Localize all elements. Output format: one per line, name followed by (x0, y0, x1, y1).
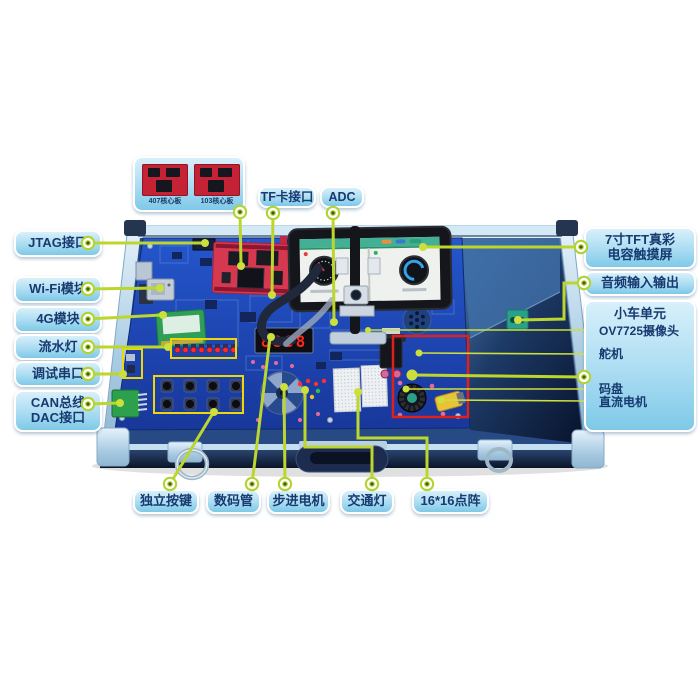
label-dot-matrix: 16*16点阵 (412, 489, 489, 514)
corner-protector-right (556, 220, 578, 236)
label-debug-uart: 调试串口 (14, 361, 102, 387)
label-traffic-light: 交通灯 (340, 489, 394, 514)
car-unit-servo-label: 舵机 (599, 348, 623, 362)
stepper-motor (261, 372, 303, 414)
label-audio-io: 音频输入输出 (584, 271, 696, 296)
jtag-connector (193, 239, 215, 250)
label-4g: 4G模块 (14, 306, 102, 333)
core-board-103-label: 103核心板 (194, 198, 240, 206)
corner-cap-right (572, 430, 604, 468)
diagram-stage: 8888 (0, 0, 700, 700)
core-board-103-image (194, 164, 240, 196)
core-board-407-image (142, 164, 188, 196)
label-flow-led: 流水灯 (14, 334, 102, 360)
camera-lens (351, 290, 361, 300)
label-tf-card: TF卡接口 (258, 186, 316, 208)
label-jtag: JTAG接口 (14, 230, 102, 257)
label-can-dac: CAN总线DAC接口 (14, 390, 102, 432)
label-keys: 独立按键 (133, 489, 199, 514)
corner-cap-left (97, 428, 129, 466)
label-adc: ADC (320, 186, 364, 208)
car-unit-dc-motor-label: 直流电机 (599, 396, 647, 410)
encoder-disc (398, 384, 426, 412)
core-board (212, 242, 293, 296)
car-unit-title: 小车单元 (586, 307, 694, 322)
label-seven-seg: 数码管 (206, 489, 261, 514)
core-boards-panel: 407核心板 103核心板 (133, 156, 245, 212)
label-wifi: Wi-Fi模块 (14, 276, 102, 303)
label-car-unit: 小车单元 OV7725摄像头 舵机 码盘 直流电机 (584, 300, 696, 432)
camera-pole (350, 226, 360, 334)
wifi-module (147, 279, 174, 300)
case-handle (296, 441, 388, 472)
usb-port (136, 262, 152, 280)
car-unit-camera-label: OV7725摄像头 (599, 325, 679, 339)
4g-module (156, 309, 206, 347)
label-stepper: 步进电机 (267, 489, 330, 514)
corner-protector-left (124, 220, 146, 236)
core-board-407-label: 407核心板 (142, 198, 188, 206)
label-tft: 7寸TFT真彩电容触摸屏 (584, 227, 696, 269)
